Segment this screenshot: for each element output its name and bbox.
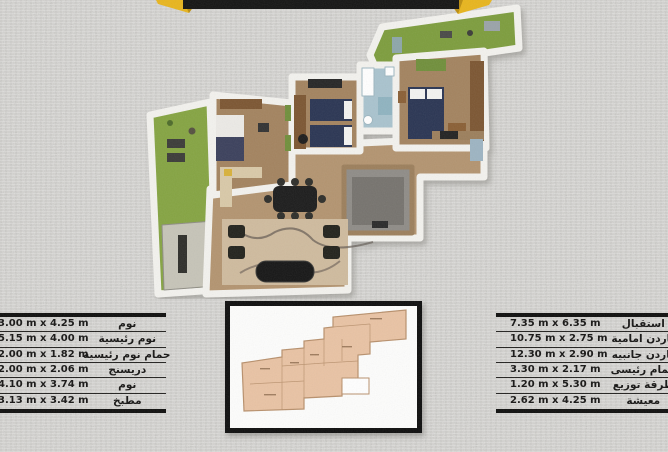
plant-icon: [167, 120, 173, 126]
armchair: [323, 225, 340, 238]
room-dimensions: 2.00 m x 2.06 m: [0, 365, 89, 375]
room-dimensions: 3.00 m x 4.25 m: [0, 319, 89, 329]
banner-bar: [183, 0, 459, 9]
armchair: [228, 225, 245, 238]
dining-chair: [277, 212, 285, 220]
room-name: حمام رئيسى: [605, 365, 668, 376]
throw-pillow: [224, 169, 232, 176]
utility-item: [372, 221, 388, 228]
round-chair: [298, 134, 308, 144]
room-dimensions: 2.62 m x 4.25 m: [496, 396, 605, 406]
plant-icon: [189, 128, 196, 135]
flyer-canvas: 3.00 m x 4.25 mنوم 5.15 m x 4.00 mنوم رئ…: [0, 0, 668, 452]
wardrobe: [470, 61, 484, 141]
chair: [258, 123, 269, 132]
bed-blanket: [216, 137, 244, 161]
table-row: 2.62 m x 4.25 mمعيشة: [496, 394, 668, 409]
pillow: [410, 89, 425, 99]
dimensions-table-left: 3.00 m x 4.25 mنوم 5.15 m x 4.00 mنوم رئ…: [0, 313, 166, 413]
garden-bench: [440, 31, 452, 38]
floor-plan-2d-frame: [225, 301, 422, 433]
room-name: نوم رئيسية: [89, 334, 166, 345]
green-rug: [416, 59, 446, 71]
table-row: 3.13 m x 3.42 mمطبخ: [0, 394, 166, 409]
garden-table: [484, 21, 500, 31]
wardrobe: [220, 99, 262, 109]
room-name: نوم: [89, 319, 166, 330]
room-name: حمام نوم رئيسية: [89, 350, 171, 361]
table-row: 12.30 m x 2.90 mجاردن جانبيه: [496, 348, 668, 363]
garden-stool: [467, 30, 473, 36]
fridge: [470, 139, 483, 161]
table-row: 10.75 m x 2.75 mجاردن امامية: [496, 332, 668, 347]
dining-table: [273, 186, 317, 212]
patio-bench: [178, 235, 187, 273]
ribbon-banner: [0, 0, 668, 22]
room-dimensions: 3.30 m x 2.17 m: [496, 365, 605, 375]
room-name: معيشة: [605, 396, 668, 407]
table-row: 1.20 m x 5.30 mطرقة توزيع: [496, 378, 668, 393]
bathtub: [362, 68, 374, 96]
tv-dresser: [308, 79, 342, 88]
dining-chair: [291, 178, 299, 186]
gray-rug: [352, 177, 404, 225]
dining-chair: [264, 195, 272, 203]
room-dimensions: 4.10 m x 3.74 m: [0, 380, 89, 390]
garden-planter: [392, 37, 402, 53]
pillow: [427, 89, 442, 99]
room-name: جاردن جانبيه: [608, 350, 668, 361]
sink: [385, 67, 394, 76]
room-dimensions: 2.00 m x 1.82 m: [0, 350, 89, 360]
table-row: 5.15 m x 4.00 mنوم رئيسية: [0, 332, 166, 347]
garden-sofa: [167, 153, 185, 162]
pillow: [344, 127, 352, 145]
room-dimensions: 12.30 m x 2.90 m: [496, 350, 608, 360]
dining-chair: [318, 195, 326, 203]
room-name: مطبخ: [89, 396, 166, 407]
bath-mat: [378, 97, 392, 115]
floor-plan-2d: [230, 306, 417, 418]
black-sofa: [256, 261, 314, 282]
pillow: [344, 101, 352, 119]
room-name: طرقة توزيع: [605, 380, 668, 391]
room-dimensions: 1.20 m x 5.30 m: [496, 380, 605, 390]
dining-chair: [277, 178, 285, 186]
table-row: 3.00 m x 4.25 mنوم: [0, 317, 166, 332]
dining-chair: [291, 212, 299, 220]
toilet: [364, 116, 373, 125]
table-row: 7.35 m x 6.35 mاستقبال: [496, 317, 668, 332]
table-row: 4.10 m x 3.74 mنوم: [0, 378, 166, 393]
side-table: [398, 91, 406, 103]
room-dimensions: 5.15 m x 4.00 m: [0, 334, 89, 344]
blueprint-hall: [342, 378, 369, 394]
table-row: 2.00 m x 1.82 mحمام نوم رئيسية: [0, 348, 166, 363]
dimensions-table-right: 7.35 m x 6.35 mاستقبال 10.75 m x 2.75 mج…: [496, 313, 668, 413]
room-name: دريسنج: [89, 365, 166, 376]
room-name: استقبال: [605, 319, 668, 330]
dining-chair: [305, 178, 313, 186]
green-accent: [285, 105, 291, 121]
room-name: جاردن امامية: [608, 334, 668, 345]
room-dimensions: 7.35 m x 6.35 m: [496, 319, 605, 329]
room-dimensions: 10.75 m x 2.75 m: [496, 334, 608, 344]
room-name: نوم: [89, 380, 166, 391]
green-accent: [285, 135, 291, 151]
stove: [440, 131, 458, 139]
floor-plan-3d: [140, 3, 532, 299]
garden-sofa: [167, 139, 185, 148]
table-row: 3.30 m x 2.17 mحمام رئيسى: [496, 363, 668, 378]
armchair: [323, 246, 340, 259]
dining-chair: [305, 212, 313, 220]
room-dimensions: 3.13 m x 3.42 m: [0, 396, 89, 406]
table-row: 2.00 m x 2.06 mدريسنج: [0, 363, 166, 378]
armchair: [228, 246, 245, 259]
